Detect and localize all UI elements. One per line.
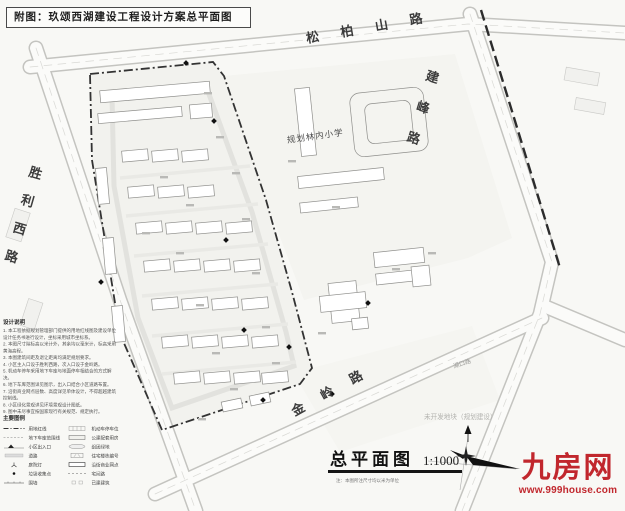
legend-row: 已建建筑 [66,478,129,487]
legend-label: 围墙 [29,479,38,486]
legend-column-left: 用地红线 地下车库范围线 小区出入口 道路 庭院灯 [3,424,66,487]
legend-column-right: 机动车停车位 公建配套用房 组团绿地 住宅楼栋编号 沿街商业网点 [66,424,129,487]
legend-row: 垃圾收集点 [3,469,66,478]
legend-label: 沿街商业网点 [92,461,119,468]
green-space-symbol [66,444,89,450]
design-note-item: 1. 本工程依据规划管理部门提供的用地红线图及建设单位设计任务书进行设计，坐标采… [3,328,120,342]
legend-row: 沿街商业网点 [66,460,129,469]
design-note-item: 7. 沿街商业网点层数、高度详见单体设计，不得超越建筑控制线。 [3,388,120,402]
plan-title-underline [328,470,462,473]
building-number-symbol [66,453,89,459]
legend-row: 宅间路 [66,469,129,478]
design-note-item: 6. 地下车库范围详见图示，出入口结合小区道路布置。 [3,382,120,389]
design-notes: 设计说明 1. 本工程依据规划管理部门提供的用地红线图及建设单位设计任务书进行设… [3,318,120,415]
footpath-symbol [66,471,89,477]
legend-label: 宅间路 [92,470,106,477]
legend-label: 已建建筑 [92,479,110,486]
legend-label: 小区出入口 [29,443,52,450]
legend-row: 道路 [3,451,66,460]
legend: 主要图例 用地红线 地下车库范围线 小区出入口 道路 [3,414,129,487]
garage-line-symbol [3,435,26,441]
legend-title: 主要图例 [3,414,129,422]
plan-note: 注：本图所注尺寸均以米为单位 [336,477,399,484]
site-plan-page: 附图：玖颂西湖建设工程设计方案总平面图 松柏山路 建峰路 胜利西路 金岭路 湖口… [0,0,625,511]
legend-row: 庭院灯 [3,460,66,469]
shop-symbol [66,462,89,468]
plan-title: 总平面图1:1000 [330,445,459,470]
legend-label: 地下车库范围线 [29,434,61,441]
legend-row: 机动车停车位 [66,424,129,433]
legend-row: 围墙 [3,478,66,487]
entrance-symbol [3,444,26,450]
plan-scale: 1:1000 [423,453,459,468]
public-building-symbol [66,435,89,441]
design-note-item: 4. 小区主入口设于胜利西路，次入口设于金岭路。 [3,361,120,368]
plan-title-text: 总平面图 [330,450,414,469]
legend-label: 公建配套用房 [92,434,119,441]
undeveloped-parcel-label: 未开发地块（规划建设） [424,412,497,421]
legend-label: 组团绿地 [92,443,110,450]
design-notes-title: 设计说明 [3,318,120,326]
legend-label: 庭院灯 [29,461,43,468]
drawing-title-block: 附图：玖颂西湖建设工程设计方案总平面图 [6,7,251,28]
parking-symbol [66,426,89,432]
wall-symbol [3,480,26,486]
legend-label: 用地红线 [29,425,47,432]
legend-row: 公建配套用房 [66,433,129,442]
watermark-brand: 九房网 [514,452,622,485]
legend-row: 组团绿地 [66,442,129,451]
red-line-symbol [3,426,26,432]
trash-point-symbol [3,471,26,477]
road-symbol [3,453,26,459]
design-note-item: 3. 本图建筑间距及退让距离均满足规划要求。 [3,355,120,362]
design-note-item: 2. 本图尺寸除标高以米计外，其余均以毫米计，标高采用黄海高程。 [3,341,120,355]
legend-label: 垃圾收集点 [29,470,52,477]
legend-row: 住宅楼栋编号 [66,451,129,460]
legend-label: 住宅楼栋编号 [92,452,119,459]
design-note-item: 5. 机动车停车采用地下车库与地面停车相结合的方式解决。 [3,368,120,382]
lamp-symbol [3,462,26,468]
existing-building-symbol [66,480,89,486]
legend-label: 机动车停车位 [92,425,119,432]
design-note-item: 8. 小区绿化景观详见环境景观设计图纸。 [3,402,120,409]
legend-label: 道路 [29,452,38,459]
watermark: 九房网 www.999house.com [514,452,622,496]
legend-row: 地下车库范围线 [3,433,66,442]
watermark-url: www.999house.com [514,485,622,496]
legend-row: 小区出入口 [3,442,66,451]
legend-row: 用地红线 [3,424,66,433]
